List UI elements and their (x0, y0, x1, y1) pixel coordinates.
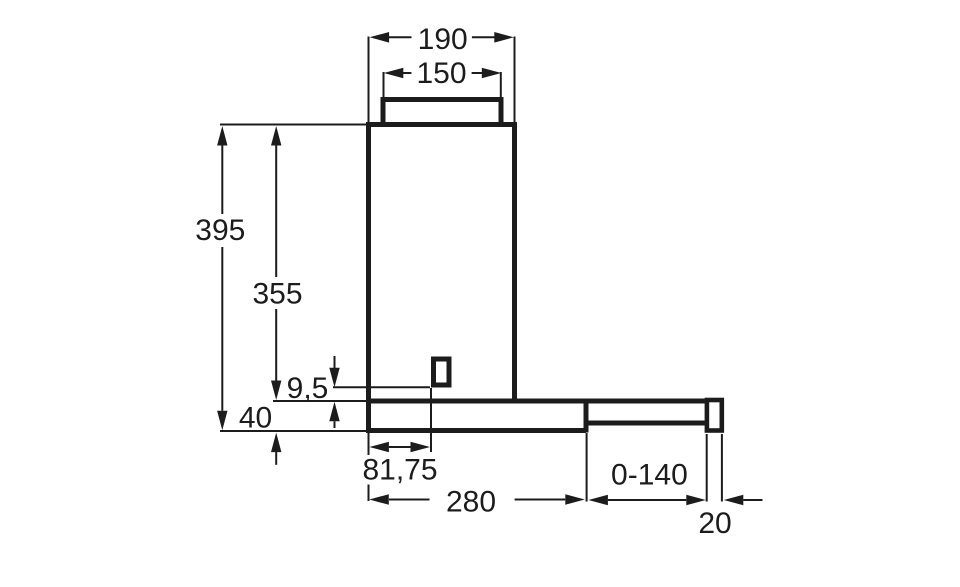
svg-text:395: 395 (195, 214, 245, 247)
svg-text:20: 20 (698, 507, 731, 540)
svg-text:40: 40 (239, 402, 272, 435)
svg-text:150: 150 (416, 57, 466, 90)
svg-text:81,75: 81,75 (362, 454, 437, 487)
svg-text:9,5: 9,5 (287, 372, 329, 405)
svg-text:280: 280 (446, 485, 496, 518)
svg-text:0-140: 0-140 (611, 459, 688, 492)
svg-text:355: 355 (252, 277, 302, 310)
svg-text:190: 190 (418, 23, 468, 56)
